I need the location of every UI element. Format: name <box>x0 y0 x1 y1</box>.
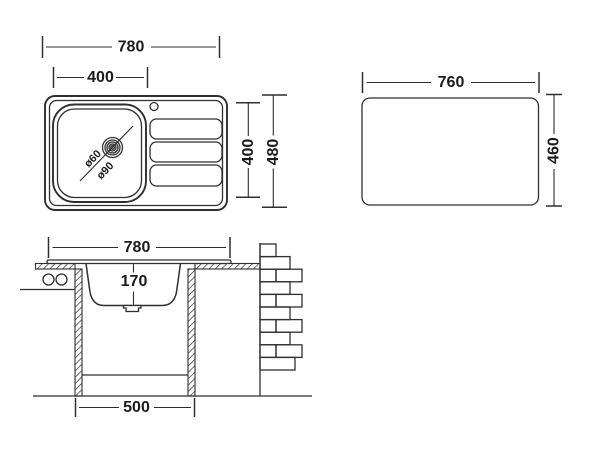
sink-top-view: 780 400 ø60 <box>43 36 288 210</box>
dim-bowl-depth: 170 <box>121 264 148 305</box>
drain-fitting <box>124 306 142 312</box>
brick <box>260 244 276 257</box>
top-bowl-width-label: 400 <box>87 69 114 86</box>
brick <box>260 282 290 295</box>
brick <box>260 294 276 307</box>
dim-section-overall-width: 780 <box>49 237 231 258</box>
countertop-left <box>36 264 76 270</box>
sink-rim-section <box>47 260 231 264</box>
top-overall-width-label: 780 <box>118 39 145 56</box>
brick <box>260 320 276 333</box>
brick <box>260 307 290 320</box>
cabinet-post-right <box>188 269 195 396</box>
countertop-right <box>195 264 260 270</box>
brick <box>276 345 302 358</box>
dim-top-overall-width: 780 <box>43 36 220 58</box>
brick <box>260 332 290 345</box>
brick <box>276 294 302 307</box>
dim-cutout-height: 460 <box>546 95 563 207</box>
sink-technical-drawing: 780 400 ø60 <box>0 0 600 450</box>
brick <box>260 269 276 282</box>
cutout-width-label: 760 <box>438 74 465 91</box>
dim-cabinet-width: 500 <box>76 398 195 417</box>
brick <box>276 269 302 282</box>
bowl-depth-label: 170 <box>121 273 148 290</box>
dim-top-bowl-length: 400 <box>236 103 260 198</box>
brick <box>260 345 276 358</box>
cutout-view: 760 460 <box>362 72 563 206</box>
front-rail-hole-right <box>56 274 67 285</box>
cabinet-width-label: 500 <box>123 399 150 416</box>
cutout-height-label: 460 <box>546 137 563 164</box>
dim-top-bowl-width: 400 <box>54 67 148 88</box>
cutout-rectangle <box>362 98 539 205</box>
brick-wall <box>260 244 302 370</box>
brick <box>260 357 295 370</box>
section-overall-width-label: 780 <box>124 239 151 256</box>
dim-top-overall-depth: 480 <box>262 95 287 207</box>
front-rail-hole-left <box>43 274 54 285</box>
cabinet-post-left <box>75 269 82 396</box>
brick <box>260 257 290 270</box>
section-view: 780 170 <box>20 237 312 417</box>
top-overall-depth-label: 480 <box>265 139 282 166</box>
dim-cutout-width: 760 <box>363 72 540 93</box>
top-bowl-length-label: 400 <box>240 139 257 166</box>
brick <box>276 320 302 333</box>
